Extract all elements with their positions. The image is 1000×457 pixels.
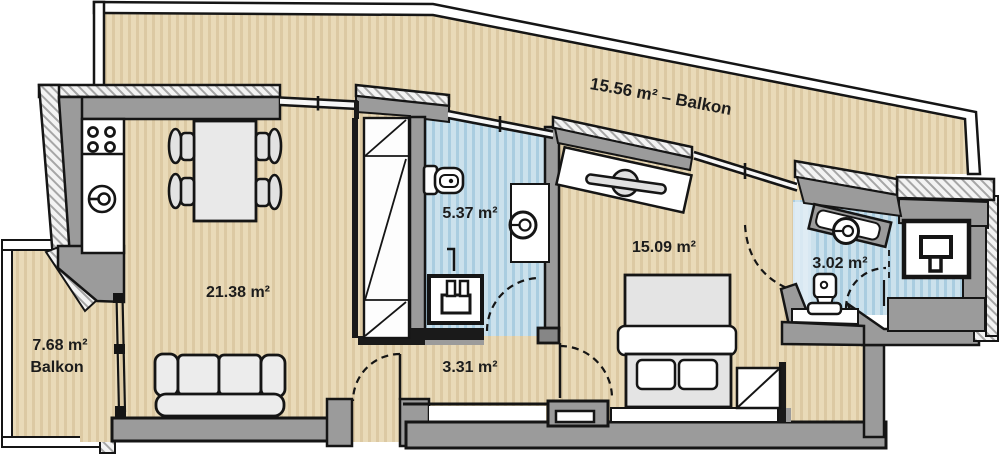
svg-text:3.31 m²: 3.31 m² <box>442 359 497 376</box>
svg-text:21.38 m²: 21.38 m² <box>206 284 270 301</box>
svg-text:Balkon: Balkon <box>30 359 83 376</box>
svg-text:5.37 m²: 5.37 m² <box>442 205 497 222</box>
svg-text:15.09 m²: 15.09 m² <box>632 239 696 256</box>
svg-text:3.02 m²: 3.02 m² <box>812 255 867 272</box>
svg-text:7.68 m²: 7.68 m² <box>32 337 87 354</box>
